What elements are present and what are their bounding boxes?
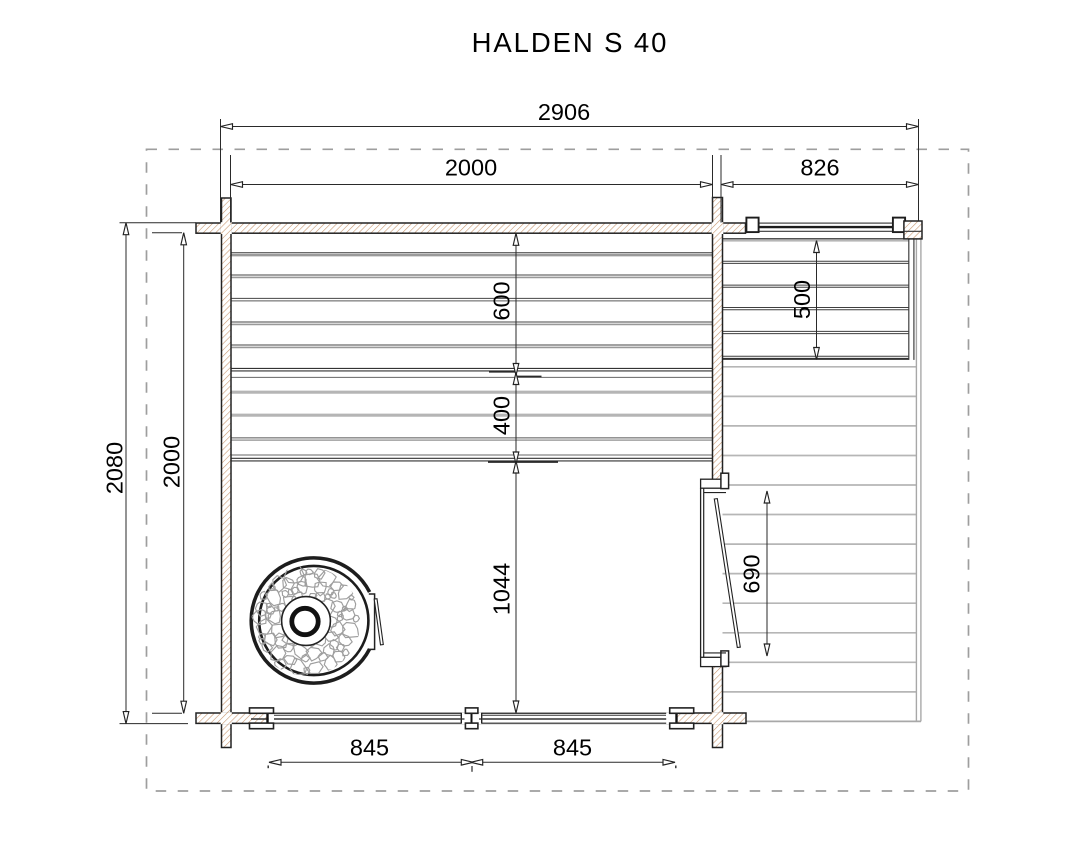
svg-text:2000: 2000 <box>159 436 185 488</box>
svg-text:500: 500 <box>789 280 815 319</box>
svg-text:1044: 1044 <box>489 563 515 615</box>
svg-text:600: 600 <box>489 281 515 320</box>
svg-text:2080: 2080 <box>102 442 128 494</box>
svg-text:690: 690 <box>739 554 765 593</box>
svg-text:400: 400 <box>489 396 515 435</box>
svg-text:845: 845 <box>553 735 592 761</box>
svg-text:2000: 2000 <box>445 155 497 181</box>
svg-text:2906: 2906 <box>538 99 590 125</box>
svg-text:826: 826 <box>800 155 839 181</box>
svg-text:845: 845 <box>350 735 389 761</box>
svg-text:HALDEN S 40: HALDEN S 40 <box>472 27 669 58</box>
